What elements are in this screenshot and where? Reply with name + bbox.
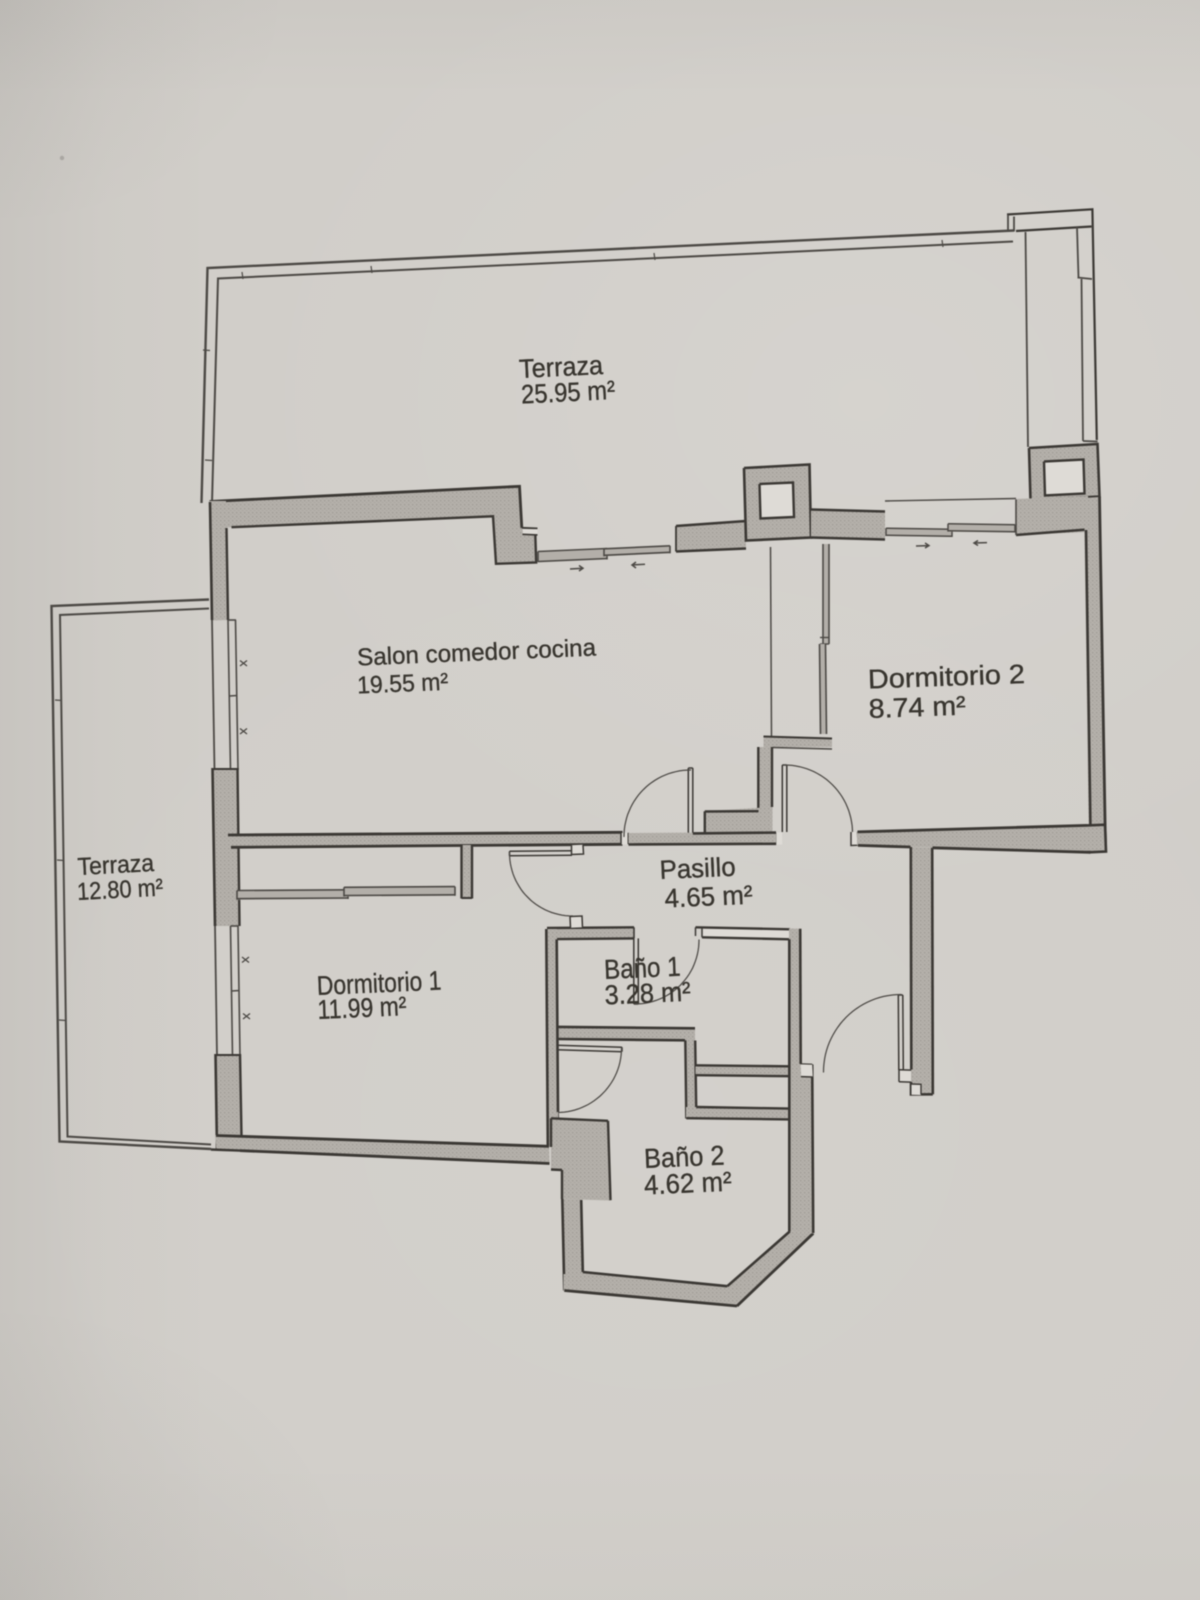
svg-text:8.74 m²: 8.74 m² — [868, 691, 966, 724]
svg-text:25.95 m²: 25.95 m² — [520, 375, 616, 410]
svg-text:3.28 m²: 3.28 m² — [604, 976, 691, 1011]
svg-text:12.80 m²: 12.80 m² — [76, 875, 163, 906]
svg-text:Dormitorio 2: Dormitorio 2 — [867, 659, 1025, 694]
svg-text:4.65 m²: 4.65 m² — [664, 880, 753, 914]
svg-text:4.62 m²: 4.62 m² — [643, 1166, 732, 1201]
svg-text:19.55 m²: 19.55 m² — [357, 669, 449, 700]
svg-text:Salon comedor cocina: Salon comedor cocina — [357, 634, 597, 671]
svg-text:11.99 m²: 11.99 m² — [317, 991, 407, 1025]
